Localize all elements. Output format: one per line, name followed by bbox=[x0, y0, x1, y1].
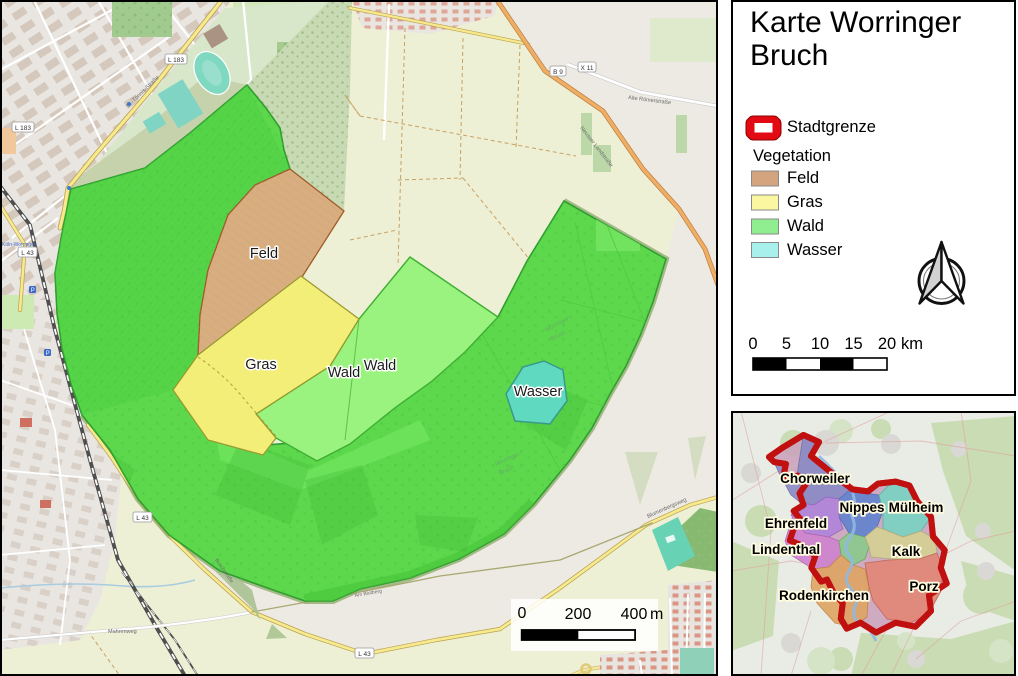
svg-text:Rodenkirchen: Rodenkirchen bbox=[779, 588, 869, 603]
svg-text:Ehrenfeld: Ehrenfeld bbox=[765, 516, 827, 531]
svg-text:X 11: X 11 bbox=[581, 65, 594, 72]
svg-text:Feld: Feld bbox=[250, 246, 278, 262]
svg-text:Gras: Gras bbox=[245, 357, 276, 373]
svg-text:L 183: L 183 bbox=[168, 57, 184, 64]
svg-text:Lindenthal: Lindenthal bbox=[752, 542, 820, 557]
svg-text:P: P bbox=[46, 351, 50, 357]
svg-text:Wald: Wald bbox=[328, 365, 361, 381]
svg-text:Nippes: Nippes bbox=[839, 500, 884, 515]
svg-text:Porz: Porz bbox=[909, 579, 939, 594]
svg-text:L 43: L 43 bbox=[136, 515, 149, 522]
svg-text:Kalk: Kalk bbox=[892, 544, 921, 559]
svg-text:Wasser: Wasser bbox=[514, 384, 563, 400]
svg-text:400: 400 bbox=[621, 606, 648, 623]
svg-text:m: m bbox=[650, 606, 663, 623]
svg-text:P: P bbox=[31, 288, 35, 294]
svg-text:200: 200 bbox=[565, 606, 592, 623]
svg-text:L 183: L 183 bbox=[15, 125, 31, 132]
svg-text:Mülheim: Mülheim bbox=[889, 500, 944, 515]
svg-text:L 43: L 43 bbox=[21, 250, 34, 257]
svg-text:B 9: B 9 bbox=[553, 69, 563, 76]
svg-text:Wald: Wald bbox=[364, 358, 397, 374]
svg-text:0: 0 bbox=[518, 605, 527, 622]
svg-text:Mahrenweg: Mahrenweg bbox=[108, 629, 137, 635]
svg-text:Chorweiler: Chorweiler bbox=[780, 471, 851, 486]
svg-text:L 43: L 43 bbox=[358, 651, 371, 658]
